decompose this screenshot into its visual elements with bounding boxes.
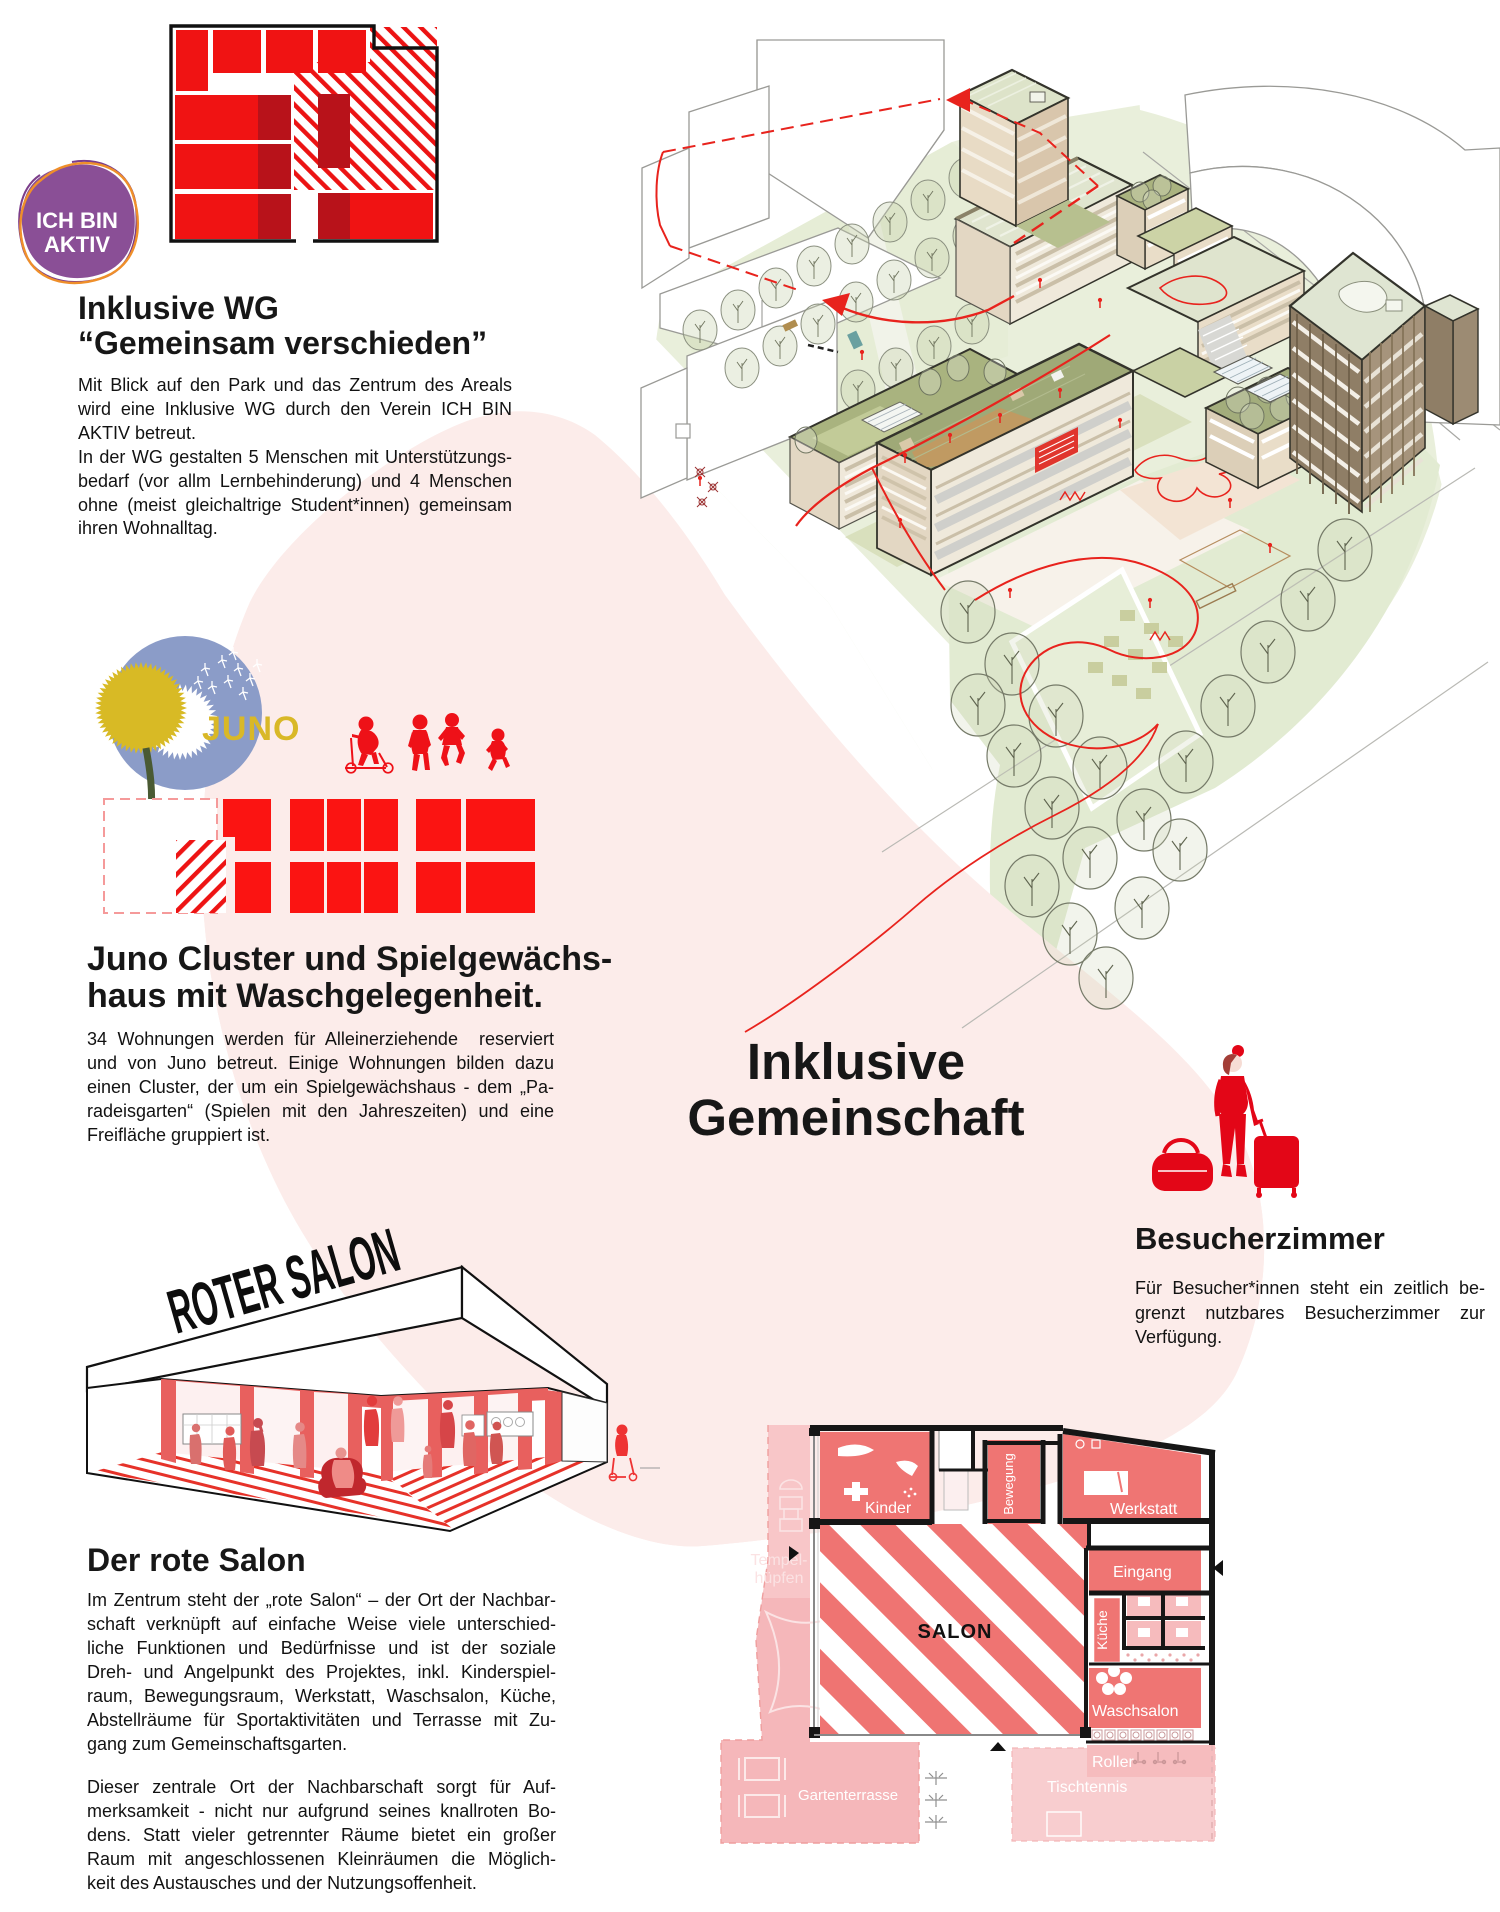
- svg-text:Waschsalon: Waschsalon: [1092, 1703, 1179, 1720]
- svg-text:Werkstatt: Werkstatt: [1110, 1501, 1178, 1518]
- svg-text:AKTIV: AKTIV: [44, 232, 110, 257]
- svg-text:Tempel-: Tempel-: [751, 1552, 808, 1569]
- svg-text:Gartenterrasse: Gartenterrasse: [798, 1787, 898, 1804]
- svg-text:Küche: Küche: [1094, 1610, 1110, 1650]
- svg-text:Bewegung: Bewegung: [1001, 1453, 1016, 1514]
- svg-text:Roller: Roller: [1092, 1754, 1134, 1771]
- svg-text:SALON: SALON: [918, 1621, 993, 1643]
- svg-text:Eingang: Eingang: [1113, 1564, 1172, 1581]
- svg-text:JUNO: JUNO: [202, 710, 300, 748]
- svg-text:ICH BIN: ICH BIN: [36, 208, 118, 233]
- svg-text:hüpfen: hüpfen: [755, 1570, 804, 1587]
- svg-text:Kinder: Kinder: [865, 1500, 912, 1517]
- svg-text:Tischtennis: Tischtennis: [1047, 1779, 1127, 1796]
